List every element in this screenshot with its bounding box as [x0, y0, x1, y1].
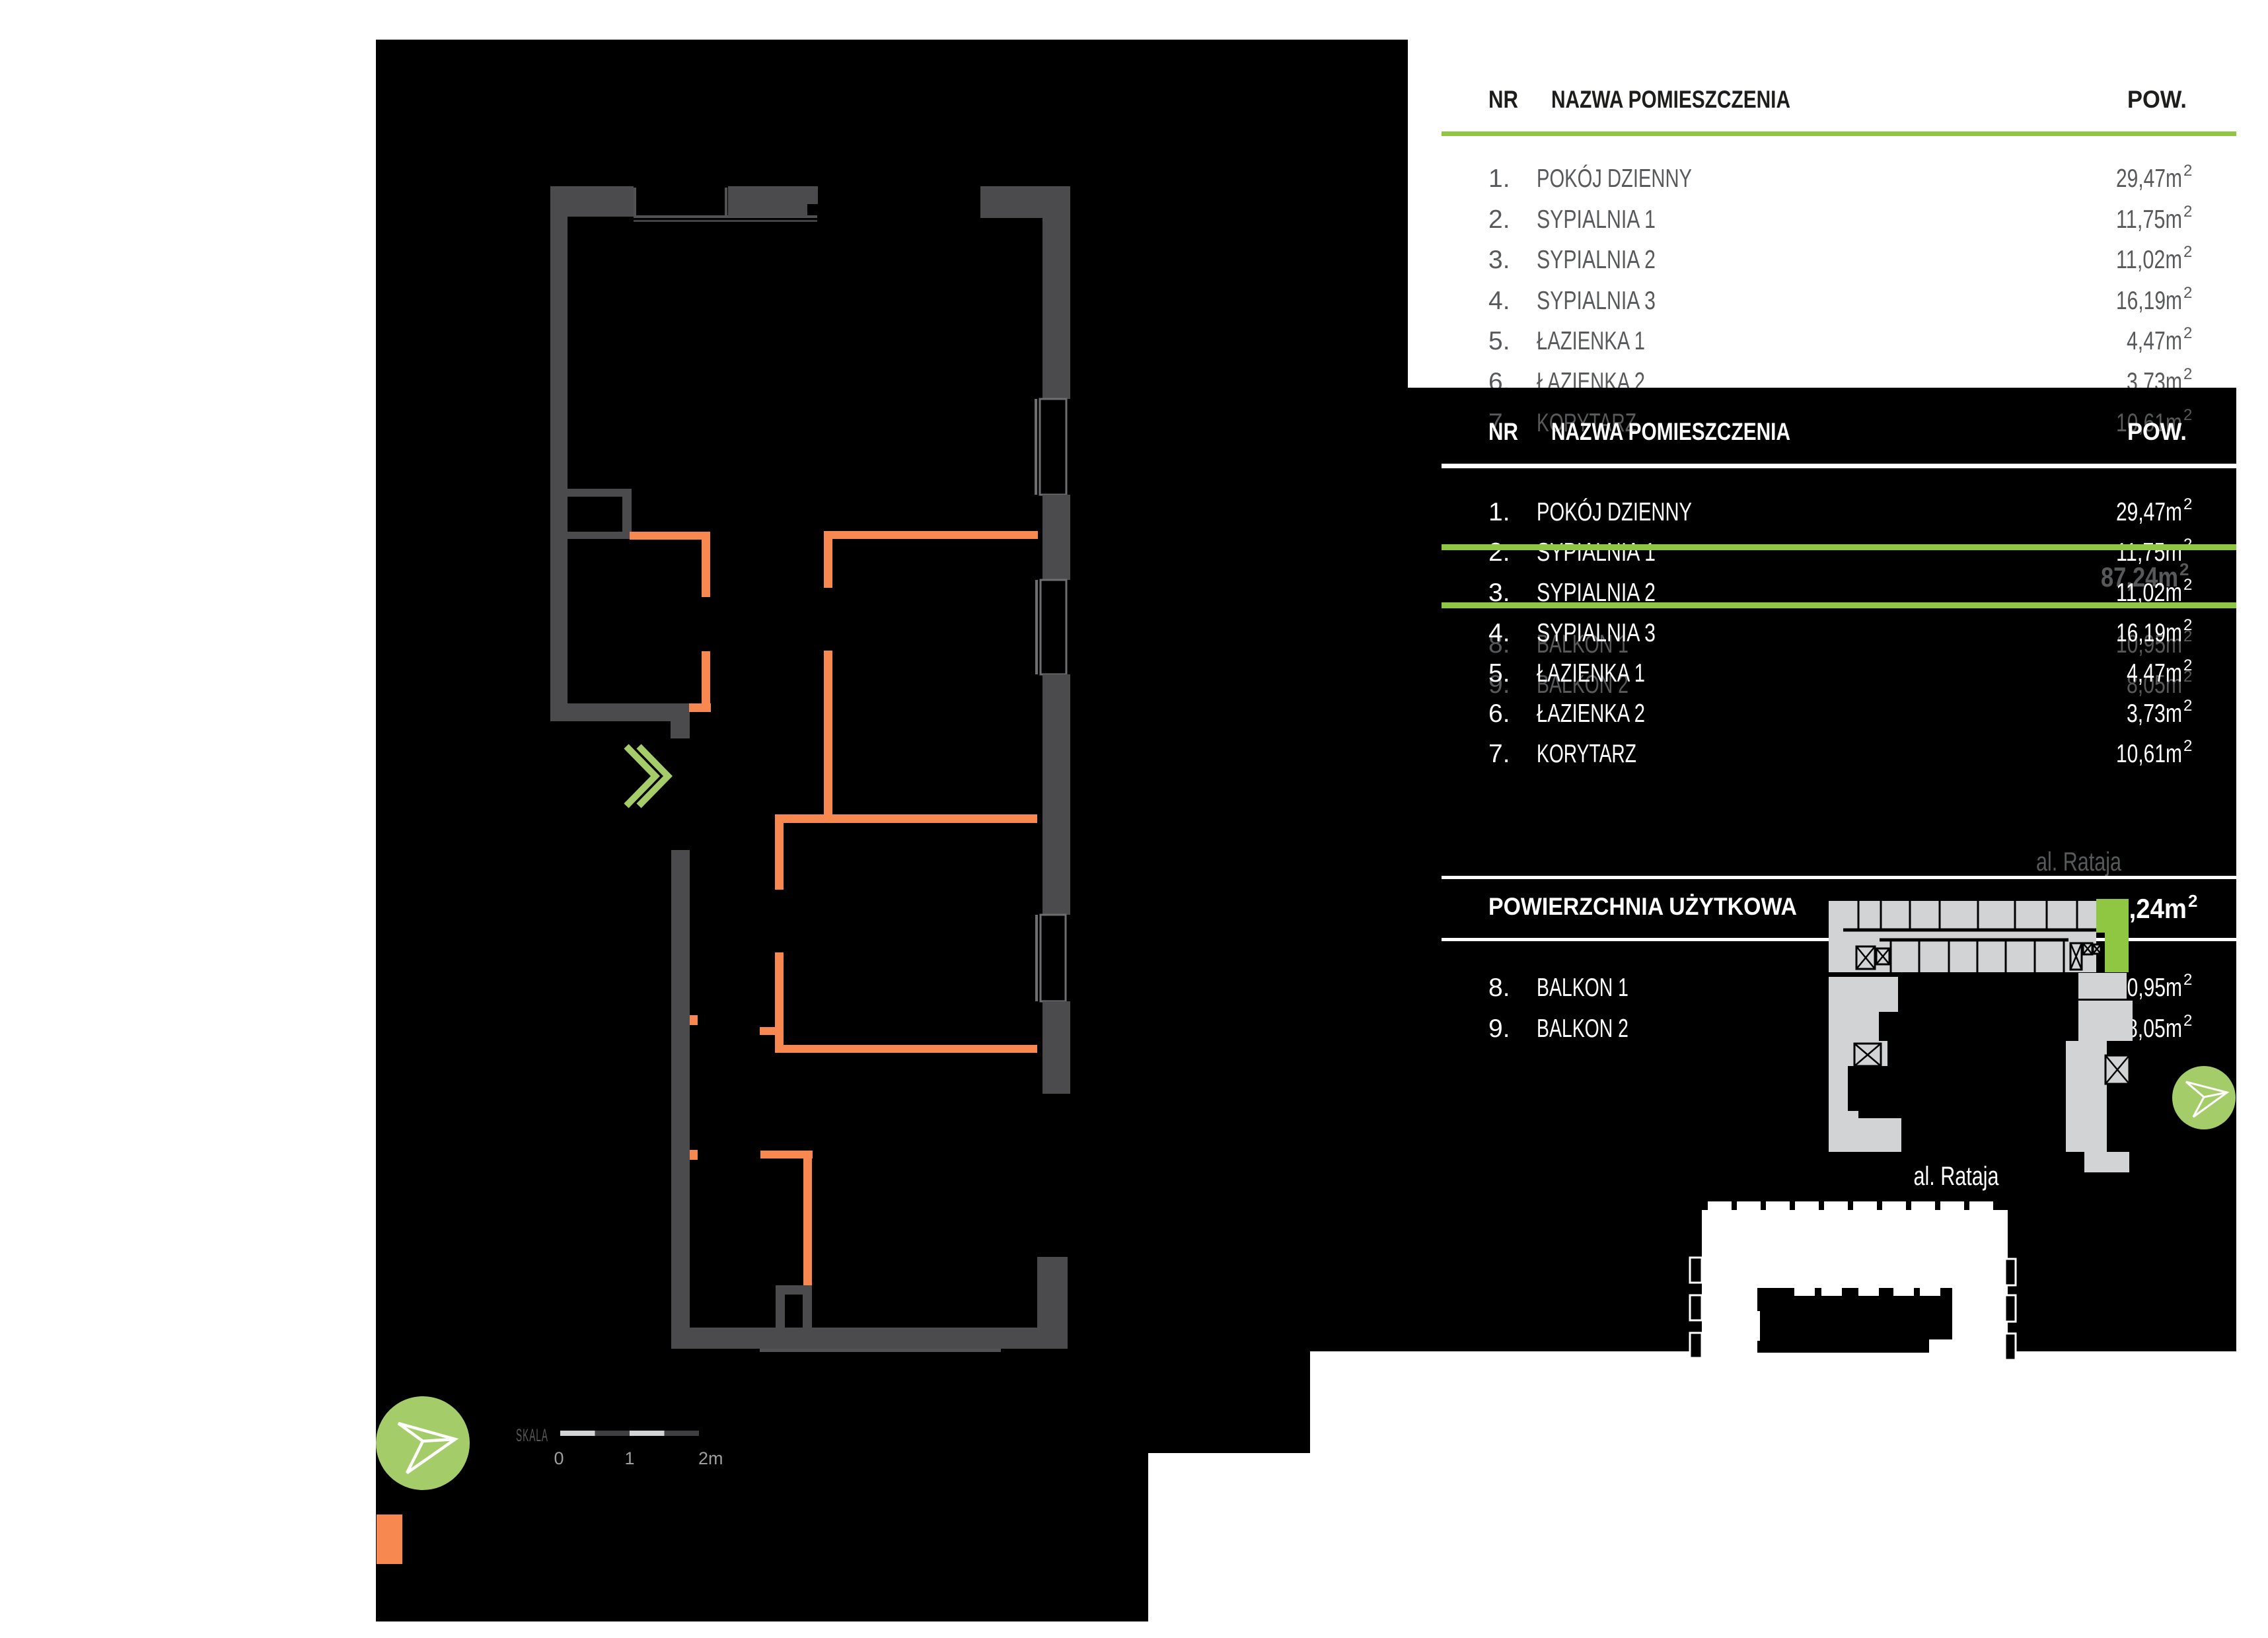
svg-text:2: 2: [2183, 576, 2192, 594]
svg-text:ŁAZIENKA 1: ŁAZIENKA 1: [1537, 327, 1645, 355]
svg-text:3,73m: 3,73m: [2127, 699, 2182, 728]
svg-text:4.: 4.: [1488, 619, 1510, 647]
svg-text:16,19m: 16,19m: [2116, 287, 2182, 315]
svg-text:2: 2: [2183, 324, 2192, 342]
svg-text:NR: NR: [1488, 418, 1518, 445]
svg-text:2: 2: [2183, 1012, 2192, 1030]
svg-text:2: 2: [2183, 737, 2192, 755]
svg-text:2: 2: [2183, 162, 2192, 180]
svg-text:6.: 6.: [1488, 699, 1510, 728]
svg-text:2m: 2m: [698, 1448, 723, 1468]
svg-text:al. Rataja: al. Rataja: [2036, 847, 2122, 876]
svg-text:1: 1: [624, 1448, 634, 1468]
svg-text:2: 2: [2183, 495, 2192, 513]
svg-text:SYPIALNIA 2: SYPIALNIA 2: [1537, 246, 1656, 274]
svg-text:ŁAZIENKA 1: ŁAZIENKA 1: [1537, 659, 1645, 688]
svg-text:ŁAZIENKA 2: ŁAZIENKA 2: [1537, 699, 1645, 728]
svg-text:SKALA: SKALA: [516, 1425, 548, 1445]
svg-text:9.: 9.: [1488, 1015, 1510, 1043]
svg-text:NR: NR: [1488, 86, 1518, 113]
svg-text:4,47m: 4,47m: [2127, 327, 2182, 355]
svg-text:11,75m: 11,75m: [2116, 205, 2182, 234]
svg-text:SYPIALNIA 3: SYPIALNIA 3: [1537, 287, 1656, 315]
svg-text:5.: 5.: [1488, 327, 1510, 355]
svg-text:BALKON 2: BALKON 2: [1537, 1015, 1628, 1043]
svg-text:2: 2: [2183, 616, 2192, 634]
svg-text:POKÓJ DZIENNY: POKÓJ DZIENNY: [1537, 164, 1692, 193]
svg-text:1.: 1.: [1488, 498, 1510, 526]
svg-text:POWIERZCHNIA UŻYTKOWA: POWIERZCHNIA UŻYTKOWA: [1488, 893, 1797, 920]
svg-text:10,61m: 10,61m: [2116, 740, 2182, 768]
svg-text:2: 2: [2188, 891, 2197, 911]
svg-text:POW.: POW.: [2127, 86, 2187, 113]
svg-text:2: 2: [2183, 971, 2192, 989]
svg-text:0: 0: [554, 1448, 564, 1468]
svg-text:2: 2: [2183, 203, 2192, 221]
svg-text:2: 2: [2183, 657, 2192, 674]
svg-text:2: 2: [2183, 243, 2192, 261]
svg-text:7.: 7.: [1488, 740, 1510, 768]
svg-text:29,47m: 29,47m: [2116, 498, 2182, 526]
svg-text:11,75m: 11,75m: [2116, 538, 2182, 567]
svg-text:SYPIALNIA 3: SYPIALNIA 3: [1537, 619, 1656, 647]
svg-text:2.: 2.: [1488, 205, 1510, 234]
svg-text:KORYTARZ: KORYTARZ: [1537, 740, 1636, 768]
svg-text:8,05m: 8,05m: [2127, 1015, 2182, 1043]
svg-text:29,47m: 29,47m: [2116, 164, 2182, 193]
svg-text:SYPIALNIA 1: SYPIALNIA 1: [1537, 538, 1656, 567]
svg-text:11,02m: 11,02m: [2116, 246, 2182, 274]
svg-text:8.: 8.: [1488, 974, 1510, 1002]
svg-text:4.: 4.: [1488, 287, 1510, 315]
svg-text:4,47m: 4,47m: [2127, 659, 2182, 688]
svg-text:1.: 1.: [1488, 164, 1510, 193]
svg-text:16,19m: 16,19m: [2116, 619, 2182, 647]
svg-text:2.: 2.: [1488, 538, 1510, 567]
svg-text:NAZWA POMIESZCZENIA: NAZWA POMIESZCZENIA: [1551, 418, 1790, 445]
svg-text:NAZWA POMIESZCZENIA: NAZWA POMIESZCZENIA: [1551, 86, 1790, 113]
svg-text:3.: 3.: [1488, 246, 1510, 274]
svg-text:al. Rataja: al. Rataja: [1914, 1162, 2000, 1191]
svg-text:SYPIALNIA 1: SYPIALNIA 1: [1537, 205, 1656, 234]
svg-text:2: 2: [2183, 697, 2192, 715]
svg-text:POW.: POW.: [2127, 418, 2187, 445]
svg-text:POKÓJ DZIENNY: POKÓJ DZIENNY: [1537, 498, 1692, 526]
svg-text:5.: 5.: [1488, 659, 1510, 688]
svg-text:BALKON 1: BALKON 1: [1537, 974, 1628, 1002]
svg-text:2: 2: [2183, 365, 2192, 383]
svg-text:2: 2: [2183, 284, 2192, 302]
